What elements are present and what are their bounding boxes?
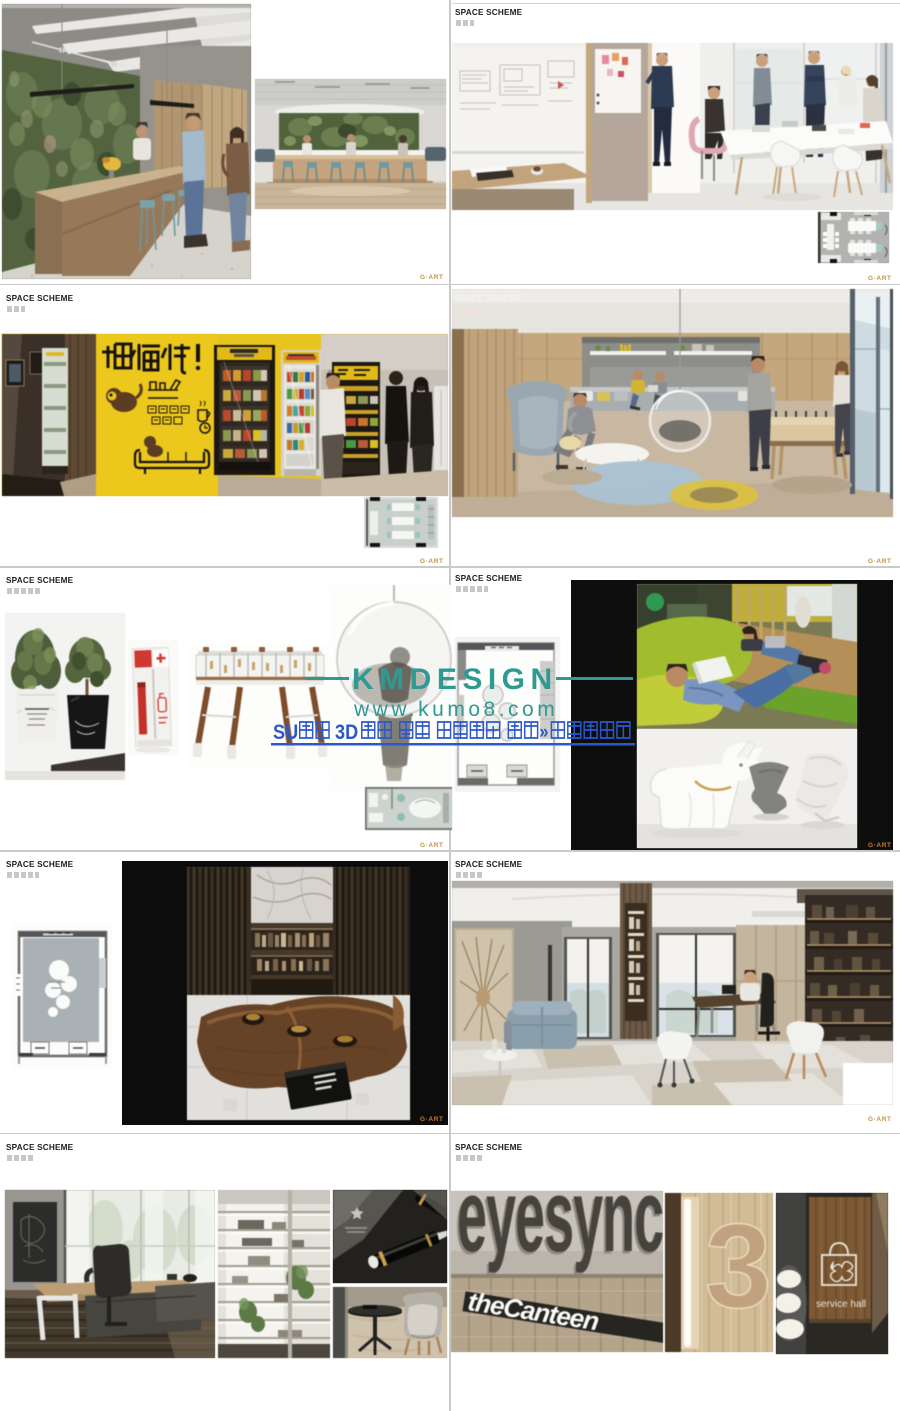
svg-text:eyesync: eyesync — [457, 1191, 663, 1273]
svg-text:3: 3 — [705, 1199, 772, 1333]
svg-text:service hall: service hall — [816, 1299, 866, 1310]
